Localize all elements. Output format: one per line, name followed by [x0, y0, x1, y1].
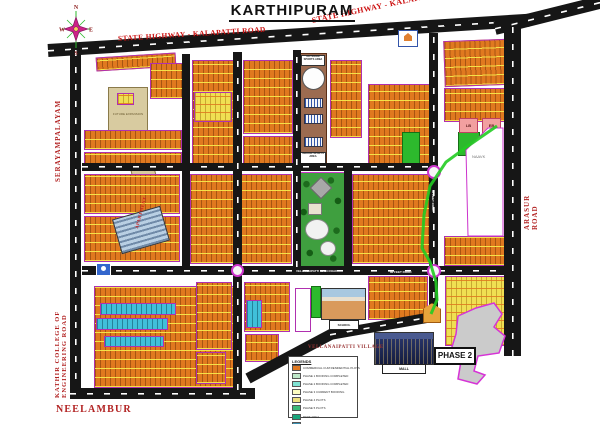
park-clubhouse-icon: [308, 203, 322, 215]
park-fountain-icon: [320, 241, 336, 256]
plot-block: [445, 276, 505, 346]
internal-road: [233, 52, 242, 390]
internal-road: [182, 54, 190, 267]
legend-swatch: [292, 414, 301, 420]
legend-label: PHASE 1 BOOKING COMPLETED: [303, 374, 348, 378]
plot-block: [84, 130, 182, 150]
legend-label: COMMERCIAL CUM RESIDENTIAL PLOTS: [303, 366, 360, 370]
legend-title: LEGENDS: [292, 359, 354, 364]
legend-box: LEGENDS COMMERCIAL CUM RESIDENTIAL PLOTS…: [288, 356, 358, 418]
main-cross-road: [82, 266, 506, 275]
school-photo: [321, 288, 366, 320]
signboard-icon: [96, 263, 111, 276]
plot-block: [352, 174, 430, 264]
legend-swatch: [292, 405, 301, 411]
serayampalayam-label: SERAYAMPALAYAM: [54, 90, 62, 182]
sports-court-icon: [304, 98, 323, 108]
green-strip: [311, 286, 321, 318]
arasur-road: [504, 26, 521, 356]
sports-court-icon: [304, 137, 323, 147]
legend-label: PHASE 5 PLOTS: [303, 406, 326, 410]
legend-row: PARK AREA: [292, 414, 354, 420]
legend-row: PHASE 3 CURRENT BOOKING: [292, 389, 354, 395]
legend-swatch: [292, 373, 301, 379]
plot-block: [150, 63, 184, 99]
page-title: KARTHIPURAM: [212, 2, 372, 22]
plot-block-cyan: [100, 303, 176, 315]
central-park: [297, 172, 346, 267]
internal-road: [344, 168, 352, 267]
legend-row: PHASE 4 PLOTS: [292, 397, 354, 403]
sports-ground-icon: [302, 67, 325, 90]
legend-label: PHASE 2 BOOKING COMPLETED: [303, 382, 348, 386]
arasur-road-label: ARASUR ROAD: [523, 168, 539, 230]
kathir-college-road: [70, 50, 81, 396]
kathir-college-label: KATHIR COLLEGE OF ENGINEERING ROAD: [54, 256, 68, 398]
legend-swatch: [292, 381, 301, 387]
future-expansion-label: FUTURE EXPANSION: [109, 112, 147, 116]
phase2-badge: PHASE 2: [434, 347, 476, 365]
legend-row: PHASE 1 BOOKING COMPLETED: [292, 373, 354, 379]
plot-block: [243, 136, 293, 165]
village-label: VELLANAIPATTI VILLAGE: [308, 345, 384, 350]
plot-block: [117, 93, 134, 105]
compass-w: W: [59, 28, 65, 34]
outdoor-sports-label: OUTDOOR SPORTS AREA: [301, 55, 325, 66]
green-strip: [458, 132, 480, 156]
roundabout-icon: [427, 264, 441, 278]
plot-block: [196, 352, 226, 384]
school-caption: SCHOOL: [329, 320, 359, 330]
amenity-block-eb: EB: [482, 118, 501, 133]
park-plaza-icon: [310, 177, 333, 200]
amenity-block-lb: LB: [459, 118, 478, 133]
park-pond-icon: [305, 219, 329, 240]
plot-block: [330, 60, 362, 138]
mid-road-name: VELLANAIPATTI MAIN ROAD: [296, 269, 337, 273]
legend-label: PARK AREA: [303, 415, 319, 419]
legend-row: PHASE 2 BOOKING COMPLETED: [292, 381, 354, 387]
sports-area-strip: OUTDOOR SPORTS AREA INDOOR SPORTS AREA: [299, 53, 327, 165]
vertical-road-name: 60 FEET ROAD: [431, 190, 435, 212]
neelambur-road: [70, 388, 255, 399]
temple-icon: [398, 30, 418, 47]
mall-caption: MALL: [382, 364, 426, 374]
layout-map: KARTHIPURAM N S W E FUTURE EXPANSION OUT…: [0, 0, 600, 424]
plot-block: [84, 174, 180, 214]
legend-label: PHASE 4 PLOTS: [303, 398, 326, 402]
page-title-text: KARTHIPURAM: [229, 2, 356, 22]
legend-row: PHASE 5 PLOTS: [292, 405, 354, 411]
reserved-site-block: [295, 288, 311, 332]
legend-row: COMMERCIAL CUM RESIDENTIAL PLOTS: [292, 365, 354, 371]
legend-swatch: [292, 389, 301, 395]
plot-block: [444, 88, 506, 122]
plot-block-cyan: [96, 318, 168, 330]
plot-block: [368, 84, 430, 165]
legend-swatch: [292, 397, 301, 403]
neelambur-label: NEELAMBUR: [56, 404, 132, 415]
compass-e: E: [89, 28, 93, 34]
cross-road: [82, 163, 432, 171]
plot-block: [194, 92, 232, 122]
plot-block: [243, 60, 293, 134]
plot-block: [443, 39, 507, 87]
plot-block-cyan: [246, 300, 262, 328]
compass-s: S: [74, 51, 78, 56]
internal-road: [293, 50, 301, 267]
cross-road-name: 80 FEET ROAD: [390, 270, 412, 274]
roundabout-icon: [427, 165, 441, 179]
roundabout-icon: [231, 264, 244, 277]
legend-label: PHASE 3 CURRENT BOOKING: [303, 390, 344, 394]
legend-swatch: [292, 365, 301, 371]
plot-block: [196, 282, 232, 350]
compass-rose-icon: N S W E: [56, 2, 96, 56]
plot-block-cyan: [104, 336, 164, 347]
plot-block: [444, 236, 505, 266]
sports-court-icon: [304, 114, 323, 124]
compass-n: N: [74, 5, 79, 11]
